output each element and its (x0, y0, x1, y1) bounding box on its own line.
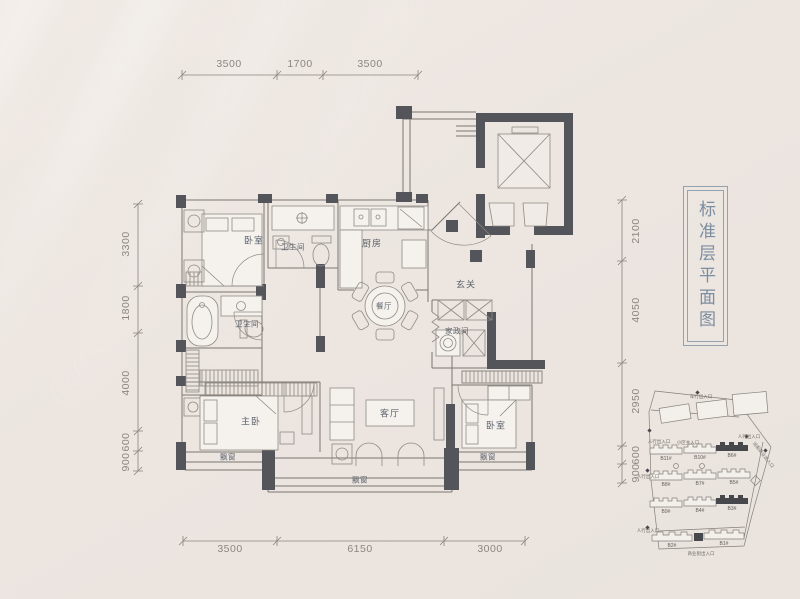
dim-top-1: 3500 (216, 58, 241, 70)
site-building-label: B4# (696, 508, 705, 514)
dim-left-5: 900 (120, 452, 132, 471)
site-building-label: B5# (730, 480, 739, 486)
plan-title-box: 标准层平面图 (683, 186, 728, 346)
room-label-dining: 餐厅 (376, 301, 392, 312)
site-building-label-highlighted: B6# (728, 453, 737, 459)
bay-window-label: 飘窗 (220, 452, 236, 463)
room-label-housekeeping: 家政间 (445, 326, 469, 337)
dim-bottom-2: 6150 (347, 543, 372, 555)
floorplan-page: 卧室 卫生间 厨房 玄关 餐厅 卫生间 家政间 主卧 客厅 卧室 飘窗 飘窗 飘… (0, 0, 800, 599)
site-entrance-label: 小区主入口 (677, 440, 700, 446)
site-entrance-label: 人行出入口 (637, 528, 660, 534)
dim-right-2: 4050 (630, 297, 642, 322)
site-building-label: B11# (660, 456, 671, 462)
site-building-label-highlighted: B3# (728, 506, 737, 512)
dim-right-3: 2950 (630, 388, 642, 413)
room-label-bathroom-main: 卫生间 (235, 319, 259, 330)
site-entrance-label: 人行出入口 (738, 434, 761, 440)
dim-right-4: 600 (630, 445, 642, 464)
right-bed-icon (462, 386, 530, 448)
room-label-master-bedroom: 主卧 (241, 415, 261, 428)
site-building-label: B7# (696, 481, 705, 487)
furniture (184, 127, 550, 466)
kitchen-counter-icon (340, 206, 428, 288)
dim-left-3: 4000 (120, 370, 132, 395)
site-plan (645, 390, 771, 549)
room-label-bedroom-right: 卧室 (486, 419, 506, 432)
site-entrance-label: 商业街出入口 (688, 551, 715, 557)
site-entrance-label: 人行出入口 (637, 474, 660, 480)
room-label-living-room: 客厅 (380, 407, 400, 420)
site-building-label: B10# (694, 455, 706, 461)
site-entrance-label: 人行出入口 (648, 439, 671, 445)
dim-top-2: 1700 (287, 58, 312, 70)
bed-icon (202, 214, 262, 286)
plan-title-inner-border: 标准层平面图 (687, 190, 724, 342)
site-entrance-label: 车行出入口 (690, 394, 713, 400)
site-building-label: B9# (662, 509, 671, 515)
site-building-label: B1# (720, 541, 729, 547)
dim-bottom-3: 3000 (477, 543, 502, 555)
room-label-foyer: 玄关 (456, 278, 476, 291)
site-building-label: B8# (662, 482, 671, 488)
dim-bottom-1: 3500 (217, 543, 242, 555)
shoe-cabinet-icon (438, 300, 492, 320)
dim-left-4: 600 (120, 432, 132, 451)
room-label-kitchen: 厨房 (362, 237, 382, 250)
folding-door-icon (432, 312, 439, 342)
plan-title: 标准层平面图 (693, 200, 718, 332)
sofa-icon (330, 388, 444, 466)
room-label-bathroom-top: 卫生间 (281, 242, 305, 253)
bay-window-label: 飘窗 (480, 452, 496, 463)
room-label-bedroom-top: 卧室 (244, 234, 264, 247)
dim-right-1: 2100 (630, 218, 642, 243)
dim-left-1: 3300 (120, 231, 132, 256)
dim-top-3: 3500 (357, 58, 382, 70)
elevator-icon (489, 127, 550, 226)
bay-window-label: 飘窗 (352, 475, 368, 486)
site-building-label: B2# (668, 543, 677, 549)
dim-left-2: 1800 (120, 295, 132, 320)
